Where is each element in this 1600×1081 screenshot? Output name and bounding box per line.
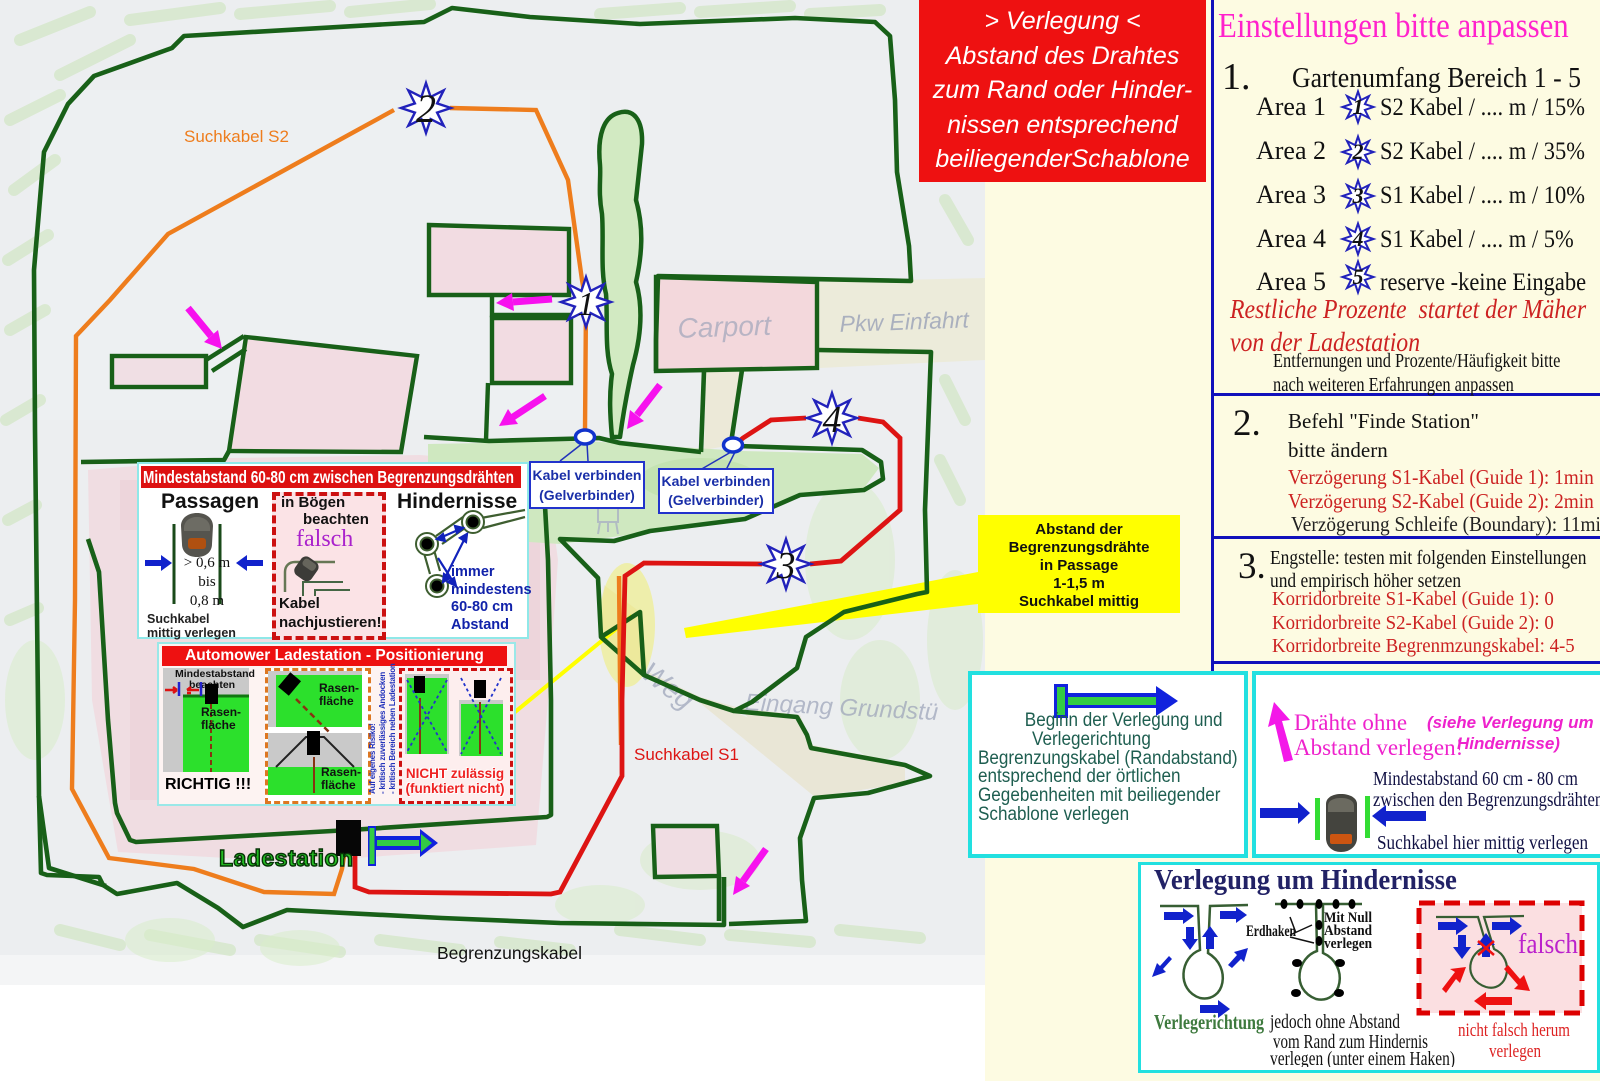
svg-text:4: 4: [823, 399, 842, 441]
svg-text:verlegen (unter einem Haken): verlegen (unter einem Haken): [1270, 1048, 1455, 1067]
svg-text:4: 4: [1352, 226, 1364, 251]
svg-text:jedoch ohne Abstand: jedoch ohne Abstand: [1269, 1011, 1400, 1033]
svg-text:Pkw Einfahrt: Pkw Einfahrt: [839, 306, 971, 337]
svg-text:verlegen: verlegen: [1324, 936, 1372, 952]
svg-text:falsch: falsch: [1518, 929, 1578, 960]
svg-text:nicht falsch herum: nicht falsch herum: [1458, 1020, 1570, 1041]
svg-text:2: 2: [1352, 139, 1364, 164]
svg-text:Ladestation: Ladestation: [219, 845, 354, 871]
svg-text:5: 5: [1353, 264, 1364, 289]
svg-text:Suchkabel S1: Suchkabel S1: [634, 745, 739, 764]
svg-text:Verlegerichtung: Verlegerichtung: [1154, 1010, 1264, 1034]
svg-text:3: 3: [776, 545, 796, 587]
svg-text:Begrenzungskabel: Begrenzungskabel: [437, 943, 582, 963]
svg-text:Carport: Carport: [677, 310, 773, 344]
svg-text:1: 1: [578, 286, 595, 323]
svg-text:2: 2: [416, 86, 436, 131]
svg-text:Erdhaken: Erdhaken: [1246, 923, 1296, 940]
svg-text:3: 3: [1352, 183, 1364, 208]
svg-text:Suchkabel S2: Suchkabel S2: [184, 127, 289, 146]
svg-text:1: 1: [1353, 94, 1364, 119]
svg-text:verlegen: verlegen: [1489, 1041, 1541, 1062]
